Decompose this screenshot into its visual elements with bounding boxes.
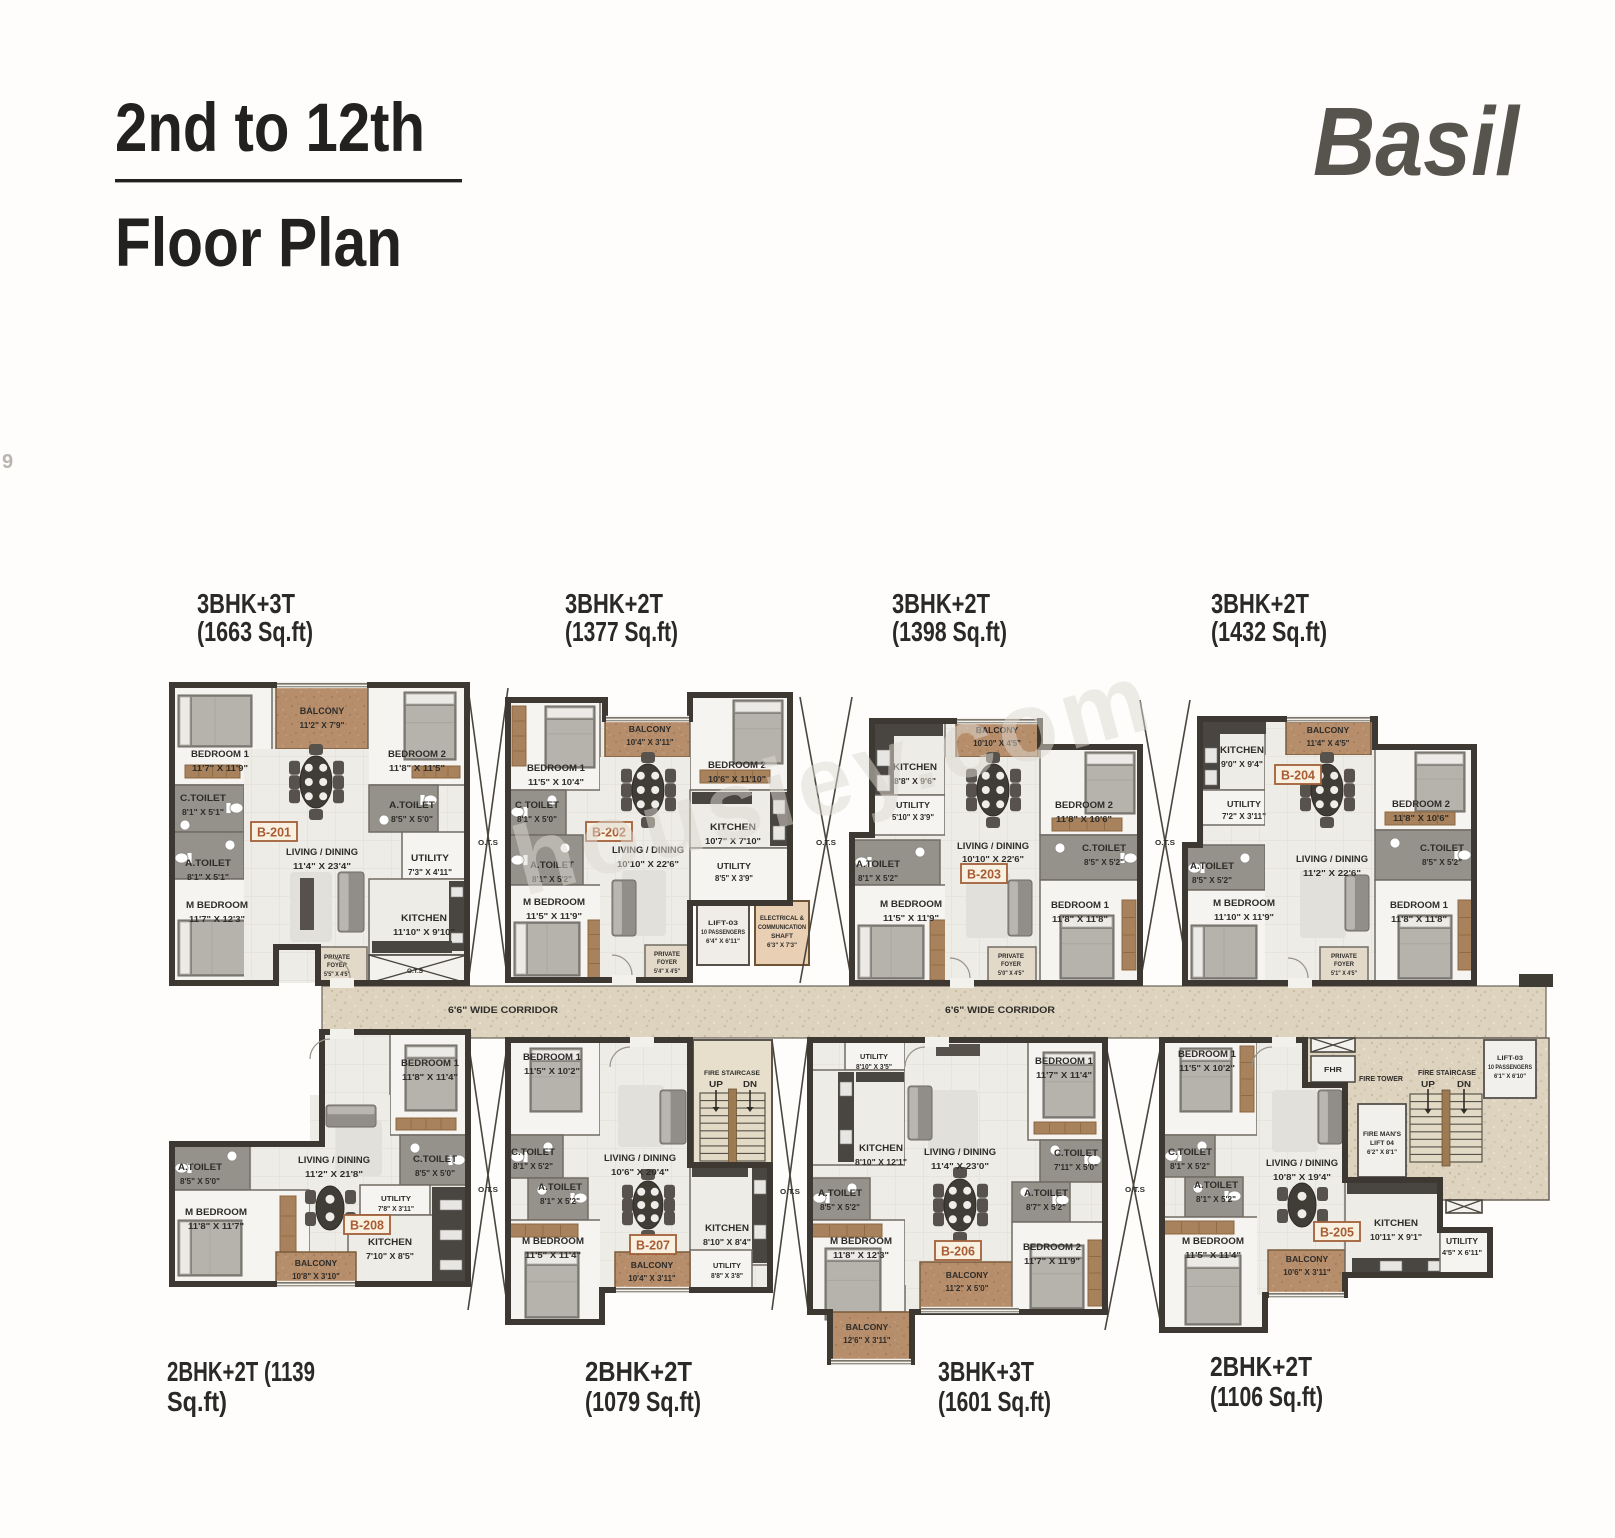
svg-text:BALCONY: BALCONY	[631, 1260, 674, 1270]
svg-text:8'1" X 5'2": 8'1" X 5'2"	[513, 1161, 553, 1171]
svg-text:5'4" X 4'5": 5'4" X 4'5"	[654, 969, 680, 975]
svg-text:3BHK+3T: 3BHK+3T	[938, 1356, 1034, 1387]
svg-text:C.TOILET: C.TOILET	[1054, 1148, 1098, 1158]
svg-text:A.TOILET: A.TOILET	[538, 1182, 582, 1192]
svg-text:BEDROOM 2: BEDROOM 2	[1055, 800, 1113, 810]
svg-text:BEDROOM 1: BEDROOM 1	[1178, 1049, 1236, 1059]
svg-text:2BHK+2T: 2BHK+2T	[1210, 1351, 1312, 1382]
svg-text:B-204: B-204	[1281, 768, 1316, 783]
svg-text:10'4" X 3'11": 10'4" X 3'11"	[626, 738, 674, 747]
svg-text:BEDROOM 1: BEDROOM 1	[401, 1058, 459, 1068]
svg-text:PRIVATE: PRIVATE	[1331, 953, 1358, 960]
svg-text:10'6" X 20'4": 10'6" X 20'4"	[611, 1167, 669, 1177]
svg-text:M BEDROOM: M BEDROOM	[1213, 898, 1275, 908]
svg-text:UTILITY: UTILITY	[1227, 799, 1261, 809]
svg-text:9'0" X 9'4": 9'0" X 9'4"	[1221, 759, 1263, 769]
svg-text:BEDROOM 1: BEDROOM 1	[1390, 900, 1448, 910]
svg-text:12'6" X 3'11": 12'6" X 3'11"	[843, 1336, 891, 1345]
svg-text:(1106 Sq.ft): (1106 Sq.ft)	[1210, 1381, 1323, 1412]
svg-text:11'7" X 11'9": 11'7" X 11'9"	[192, 763, 248, 773]
svg-text:3BHK+3T: 3BHK+3T	[197, 588, 295, 619]
svg-text:BALCONY: BALCONY	[300, 706, 345, 716]
svg-text:(1377 Sq.ft): (1377 Sq.ft)	[565, 616, 678, 647]
svg-text:8'5" X 5'2": 8'5" X 5'2"	[1192, 875, 1232, 885]
svg-text:M BEDROOM: M BEDROOM	[186, 900, 248, 910]
svg-text:UTILITY: UTILITY	[713, 1261, 741, 1270]
svg-text:BALCONY: BALCONY	[946, 1270, 989, 1280]
svg-text:O.T.S: O.T.S	[1155, 840, 1175, 847]
svg-text:8'1" X 5'1": 8'1" X 5'1"	[182, 807, 224, 817]
svg-text:O.T.S: O.T.S	[1125, 1187, 1145, 1194]
svg-text:BALCONY: BALCONY	[1286, 1254, 1329, 1264]
svg-text:ELECTRICAL &: ELECTRICAL &	[760, 915, 804, 922]
svg-text:LIVING / DINING: LIVING / DINING	[604, 1153, 676, 1163]
svg-text:FIRE STAIRCASE: FIRE STAIRCASE	[704, 1070, 760, 1077]
svg-text:FHR: FHR	[1324, 1067, 1342, 1074]
svg-text:8'1" X 5'2": 8'1" X 5'2"	[540, 1196, 580, 1206]
svg-text:A.TOILET: A.TOILET	[1190, 861, 1234, 871]
svg-text:PRIVATE: PRIVATE	[998, 953, 1025, 960]
svg-text:11'4" X 23'0": 11'4" X 23'0"	[931, 1161, 989, 1171]
svg-text:KITCHEN: KITCHEN	[401, 913, 447, 923]
svg-text:11'2" X 21'8": 11'2" X 21'8"	[305, 1169, 363, 1179]
svg-text:10'4" X 3'11": 10'4" X 3'11"	[628, 1274, 676, 1283]
svg-text:LIFT 04: LIFT 04	[1370, 1140, 1394, 1147]
svg-text:A.TOILET: A.TOILET	[178, 1162, 222, 1172]
svg-text:B-208: B-208	[350, 1218, 384, 1233]
svg-text:KITCHEN: KITCHEN	[1374, 1218, 1418, 1228]
svg-text:COMMUNICATION: COMMUNICATION	[758, 924, 806, 931]
svg-text:C.TOILET: C.TOILET	[413, 1154, 457, 1164]
svg-text:7'10" X 8'5": 7'10" X 8'5"	[366, 1251, 414, 1261]
svg-text:8'7" X 5'2": 8'7" X 5'2"	[1026, 1202, 1066, 1212]
svg-text:BEDROOM 1: BEDROOM 1	[191, 749, 249, 759]
svg-text:7'11" X 5'0": 7'11" X 5'0"	[1054, 1162, 1098, 1172]
svg-text:A.TOILET: A.TOILET	[1194, 1180, 1238, 1190]
svg-text:UTILITY: UTILITY	[1446, 1237, 1479, 1246]
svg-text:LIFT-03: LIFT-03	[1497, 1055, 1524, 1062]
svg-text:8'5" X 5'2": 8'5" X 5'2"	[820, 1202, 860, 1212]
svg-text:2nd to 12th: 2nd to 12th	[115, 89, 425, 166]
svg-text:C.TOILET: C.TOILET	[1082, 843, 1126, 853]
svg-text:M BEDROOM: M BEDROOM	[522, 1236, 584, 1246]
svg-text:(1601 Sq.ft): (1601 Sq.ft)	[938, 1386, 1051, 1417]
svg-text:O.T.S: O.T.S	[780, 1189, 800, 1196]
svg-text:11'8" X 11'7": 11'8" X 11'7"	[188, 1221, 244, 1231]
svg-text:7'2" X 3'11": 7'2" X 3'11"	[1222, 811, 1266, 821]
svg-text:10 PASSENGERS: 10 PASSENGERS	[701, 929, 745, 936]
svg-text:BEDROOM 1: BEDROOM 1	[527, 763, 585, 773]
svg-text:FIRE STAIRCASE: FIRE STAIRCASE	[1418, 1070, 1476, 1077]
svg-text:FOYER: FOYER	[1334, 961, 1354, 968]
svg-text:11'2" X 5'0": 11'2" X 5'0"	[946, 1284, 989, 1293]
svg-text:UP: UP	[709, 1079, 723, 1089]
svg-text:DN: DN	[1457, 1079, 1471, 1089]
svg-text:BEDROOM 1: BEDROOM 1	[1051, 900, 1109, 910]
svg-text:11'5" X 11'4": 11'5" X 11'4"	[525, 1250, 581, 1260]
svg-text:BEDROOM 1: BEDROOM 1	[1035, 1056, 1093, 1066]
svg-text:11'8" X 11'4": 11'8" X 11'4"	[402, 1072, 458, 1082]
svg-text:8'1" X 5'2": 8'1" X 5'2"	[1170, 1161, 1210, 1171]
svg-text:8'5" X 5'0": 8'5" X 5'0"	[391, 814, 433, 824]
svg-text:5'0" X 4'5": 5'0" X 4'5"	[998, 971, 1024, 977]
svg-text:KITCHEN: KITCHEN	[368, 1237, 412, 1247]
svg-text:8'5" X 5'0": 8'5" X 5'0"	[180, 1176, 220, 1186]
svg-text:11'4" X 4'5": 11'4" X 4'5"	[1307, 739, 1350, 748]
svg-text:LIVING / DINING: LIVING / DINING	[286, 847, 358, 857]
svg-text:2BHK+2T: 2BHK+2T	[585, 1356, 692, 1387]
svg-text:11'7" X 11'4": 11'7" X 11'4"	[1036, 1070, 1092, 1080]
svg-text:LIVING / DINING: LIVING / DINING	[957, 841, 1029, 851]
svg-text:BALCONY: BALCONY	[629, 724, 672, 734]
svg-text:11'10" X 11'9": 11'10" X 11'9"	[1214, 912, 1274, 922]
svg-text:B-203: B-203	[967, 867, 1001, 882]
svg-text:A.TOILET: A.TOILET	[1024, 1188, 1068, 1198]
svg-text:UP: UP	[1421, 1079, 1435, 1089]
svg-text:PRIVATE: PRIVATE	[654, 951, 681, 958]
svg-text:BALCONY: BALCONY	[846, 1322, 889, 1332]
svg-text:11'7" X 12'3": 11'7" X 12'3"	[189, 914, 245, 924]
svg-text:LIVING / DINING: LIVING / DINING	[1266, 1158, 1338, 1168]
svg-text:UTILITY: UTILITY	[860, 1052, 888, 1061]
svg-text:11'2" X 7'9": 11'2" X 7'9"	[300, 720, 345, 730]
svg-text:LIVING / DINING: LIVING / DINING	[924, 1147, 996, 1157]
svg-text:11'8" X 11'5": 11'8" X 11'5"	[389, 763, 445, 773]
svg-text:FOYER: FOYER	[657, 959, 677, 966]
svg-text:11'5" X 10'2": 11'5" X 10'2"	[524, 1066, 580, 1076]
svg-text:8'1" X 5'2": 8'1" X 5'2"	[1196, 1194, 1236, 1204]
svg-text:6'6" WIDE CORRIDOR: 6'6" WIDE CORRIDOR	[945, 1005, 1055, 1015]
svg-text:11'10" X 9'10": 11'10" X 9'10"	[393, 927, 455, 937]
svg-text:10'11" X 9'1": 10'11" X 9'1"	[1370, 1232, 1422, 1242]
svg-text:6'3" X 7'3": 6'3" X 7'3"	[767, 942, 797, 949]
svg-text:(1079 Sq.ft): (1079 Sq.ft)	[585, 1386, 701, 1417]
svg-text:8'5" X 5'2": 8'5" X 5'2"	[1422, 857, 1462, 867]
svg-text:M BEDROOM: M BEDROOM	[880, 899, 942, 909]
svg-text:3BHK+2T: 3BHK+2T	[1211, 588, 1309, 619]
svg-text:6'1" X 6'10": 6'1" X 6'10"	[1494, 1074, 1526, 1080]
svg-text:11'8" X 10'6": 11'8" X 10'6"	[1393, 813, 1449, 823]
svg-text:BEDROOM 1: BEDROOM 1	[523, 1052, 581, 1062]
svg-text:11'5" X 10'4": 11'5" X 10'4"	[528, 777, 584, 787]
svg-text:(1398 Sq.ft): (1398 Sq.ft)	[892, 616, 1007, 647]
svg-text:10'8" X 19'4": 10'8" X 19'4"	[1273, 1172, 1331, 1182]
svg-text:10'8" X 3'10": 10'8" X 3'10"	[292, 1272, 340, 1281]
svg-text:LIVING / DINING: LIVING / DINING	[298, 1155, 370, 1165]
svg-text:10'6" X 3'11": 10'6" X 3'11"	[1283, 1268, 1331, 1277]
svg-text:6'2" X 8'1": 6'2" X 8'1"	[1367, 1149, 1397, 1156]
svg-text:M BEDROOM: M BEDROOM	[1182, 1236, 1244, 1246]
svg-text:M BEDROOM: M BEDROOM	[830, 1236, 892, 1246]
svg-text:A.TOILET: A.TOILET	[856, 859, 900, 869]
svg-text:8'1" X 5'2": 8'1" X 5'2"	[858, 873, 898, 883]
svg-text:11'8" X 11'8": 11'8" X 11'8"	[1052, 914, 1108, 924]
svg-text:5'1" X 4'5": 5'1" X 4'5"	[1331, 971, 1357, 977]
svg-text:7'3" X 4'11": 7'3" X 4'11"	[408, 867, 452, 877]
svg-text:10 PASSENGERS: 10 PASSENGERS	[1488, 1065, 1532, 1071]
svg-text:5'5" X 4'5": 5'5" X 4'5"	[324, 972, 350, 978]
svg-text:11'8" X 10'6": 11'8" X 10'6"	[1056, 814, 1112, 824]
svg-text:O.T.S: O.T.S	[407, 968, 424, 975]
svg-text:BEDROOM 2: BEDROOM 2	[1392, 799, 1450, 809]
svg-text:LIFT-03: LIFT-03	[708, 920, 738, 927]
svg-text:C.TOILET: C.TOILET	[511, 1147, 555, 1157]
svg-text:8'10" X 3'5": 8'10" X 3'5"	[856, 1064, 892, 1071]
svg-text:O.T.S: O.T.S	[478, 840, 498, 847]
svg-text:11'5" X 10'2": 11'5" X 10'2"	[1179, 1063, 1235, 1073]
svg-text:11'8" X 12'3": 11'8" X 12'3"	[833, 1250, 889, 1260]
svg-text:11'4" X 23'4": 11'4" X 23'4"	[293, 861, 351, 871]
svg-text:UTILITY: UTILITY	[411, 853, 450, 863]
svg-text:KITCHEN: KITCHEN	[1220, 745, 1264, 755]
svg-text:KITCHEN: KITCHEN	[859, 1143, 903, 1153]
svg-text:B-201: B-201	[257, 825, 291, 840]
svg-text:FOYER: FOYER	[1001, 961, 1021, 968]
svg-text:B-207: B-207	[636, 1238, 670, 1253]
svg-text:2BHK+2T (1139: 2BHK+2T (1139	[167, 1356, 315, 1387]
svg-text:(1432 Sq.ft): (1432 Sq.ft)	[1211, 616, 1327, 647]
svg-text:BALCONY: BALCONY	[295, 1258, 338, 1268]
svg-text:O.T.S: O.T.S	[478, 1187, 498, 1194]
svg-text:8'10" X 12'1": 8'10" X 12'1"	[855, 1157, 907, 1167]
svg-text:Sq.ft): Sq.ft)	[167, 1386, 227, 1417]
svg-text:BALCONY: BALCONY	[1307, 725, 1350, 735]
svg-text:9: 9	[2, 451, 13, 473]
svg-text:10'10" X 22'6": 10'10" X 22'6"	[962, 854, 1024, 864]
svg-text:BEDROOM 2: BEDROOM 2	[1023, 1242, 1081, 1252]
svg-text:Floor Plan: Floor Plan	[115, 204, 402, 281]
svg-text:UTILITY: UTILITY	[381, 1194, 411, 1203]
svg-text:O.T.S: O.T.S	[816, 840, 836, 847]
svg-text:C.TOILET: C.TOILET	[1420, 843, 1464, 853]
svg-text:FIRE MAN'S: FIRE MAN'S	[1363, 1131, 1402, 1138]
svg-text:11'8" X 11'8": 11'8" X 11'8"	[1391, 914, 1447, 924]
svg-text:B-205: B-205	[1320, 1225, 1354, 1240]
svg-text:3BHK+2T: 3BHK+2T	[565, 588, 663, 619]
svg-text:8'1" X 5'1": 8'1" X 5'1"	[187, 872, 229, 882]
svg-text:BEDROOM 2: BEDROOM 2	[388, 749, 446, 759]
svg-text:A.TOILET: A.TOILET	[389, 800, 435, 810]
svg-text:C.TOILET: C.TOILET	[1168, 1147, 1212, 1157]
svg-text:11'7" X 11'9": 11'7" X 11'9"	[1024, 1256, 1080, 1266]
svg-text:M BEDROOM: M BEDROOM	[185, 1207, 247, 1217]
svg-text:B-206: B-206	[941, 1244, 975, 1259]
svg-text:A.TOILET: A.TOILET	[185, 858, 231, 868]
svg-text:8'5" X 5'2": 8'5" X 5'2"	[1084, 857, 1124, 867]
svg-text:FIRE TOWER: FIRE TOWER	[1359, 1074, 1404, 1083]
svg-text:8'5" X 3'9": 8'5" X 3'9"	[715, 873, 753, 883]
svg-text:8'10" X 8'4": 8'10" X 8'4"	[703, 1237, 751, 1247]
svg-text:6'6" WIDE CORRIDOR: 6'6" WIDE CORRIDOR	[448, 1005, 558, 1015]
svg-text:LIVING / DINING: LIVING / DINING	[1296, 854, 1368, 864]
svg-text:Basil: Basil	[1313, 87, 1521, 196]
svg-text:C.TOILET: C.TOILET	[180, 793, 226, 803]
svg-text:11'2" X 22'6": 11'2" X 22'6"	[1303, 868, 1361, 878]
svg-text:DN: DN	[743, 1079, 757, 1089]
svg-text:KITCHEN: KITCHEN	[705, 1223, 749, 1233]
svg-text:4'5" X 6'11": 4'5" X 6'11"	[1442, 1248, 1482, 1257]
svg-text:6'4" X 6'11": 6'4" X 6'11"	[706, 938, 740, 945]
svg-text:SHAFT: SHAFT	[771, 933, 793, 940]
svg-text:(1663 Sq.ft): (1663 Sq.ft)	[197, 616, 313, 647]
svg-text:8'8" X 3'8": 8'8" X 3'8"	[711, 1273, 743, 1280]
svg-text:7'8" X 3'11": 7'8" X 3'11"	[378, 1206, 414, 1213]
svg-text:11'5" X 11'9": 11'5" X 11'9"	[883, 913, 939, 923]
svg-text:11'5" X 11'4": 11'5" X 11'4"	[1185, 1250, 1241, 1260]
svg-text:A.TOILET: A.TOILET	[818, 1188, 862, 1198]
svg-text:3BHK+2T: 3BHK+2T	[892, 588, 990, 619]
svg-text:8'5" X 5'0": 8'5" X 5'0"	[415, 1168, 455, 1178]
svg-text:FOYER: FOYER	[327, 962, 347, 969]
